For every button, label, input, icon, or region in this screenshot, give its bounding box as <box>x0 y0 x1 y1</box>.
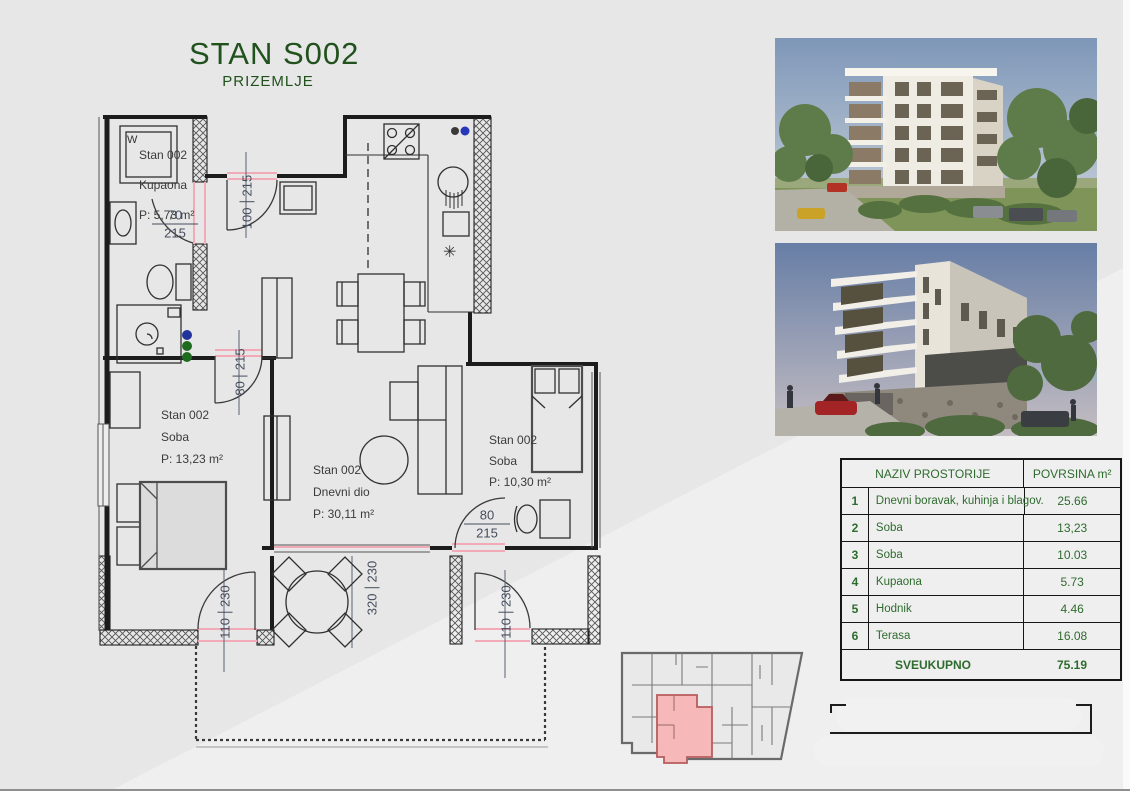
dimension-terrace-door-right: 110 230 <box>499 585 514 638</box>
table-row: 3 Soba 10.03 <box>842 541 1120 568</box>
table-row: 1 Dnevni boravak, kuhinja i blagov. 25.6… <box>842 487 1120 514</box>
table-row: 5 Hodnik 4.46 <box>842 595 1120 622</box>
table-row: 2 Soba 13,23 <box>842 514 1120 541</box>
redaction-blob <box>814 736 1104 766</box>
dimension-entry-door: 100 215 <box>240 175 255 229</box>
room-label-dnevni-dio: Stan 002 Dnevni dio P: 30,11 m² <box>313 459 374 525</box>
room-label-soba-right: Stan 002 Soba P: 10,30 m² <box>489 430 551 493</box>
table-row: 4 Kupaona 5.73 <box>842 568 1120 595</box>
dimension-bedroom-right-door: 80 215 <box>464 508 510 541</box>
table-row: 6 Terasa 16.08 <box>842 622 1120 649</box>
page-right-margin <box>1123 0 1130 801</box>
dimension-terrace-door-left: 110 230 <box>218 585 233 638</box>
area-table-header: NAZIV PROSTORIJE POVRSINA m² <box>842 460 1120 487</box>
room-label-soba-left: Stan 002 Soba P: 13,23 m² <box>161 404 223 470</box>
fridge-symbol-icon: ✳ <box>443 242 456 262</box>
dimension-bathroom-door: 70 215 <box>152 208 198 241</box>
terrace-boundary <box>196 646 545 740</box>
washing-machine-label: W <box>127 134 137 146</box>
dimension-bedroom-left-door: 80 215 <box>233 348 248 395</box>
page-subtitle: PRIZEMLJE <box>192 73 344 90</box>
area-table: NAZIV PROSTORIJE POVRSINA m² 1 Dnevni bo… <box>840 458 1122 681</box>
page-bottom-margin <box>0 791 1130 801</box>
plumbing-dots <box>182 127 470 363</box>
building-render-front <box>775 38 1097 231</box>
redaction-blob <box>836 698 1082 732</box>
dimension-terrace-slider: 320 230 <box>365 561 380 615</box>
building-render-side <box>775 243 1097 436</box>
area-table-footer: SVEUKUPNO 75.19 <box>842 649 1120 679</box>
page-title: STAN S002 <box>189 36 359 72</box>
key-plan <box>622 653 802 763</box>
